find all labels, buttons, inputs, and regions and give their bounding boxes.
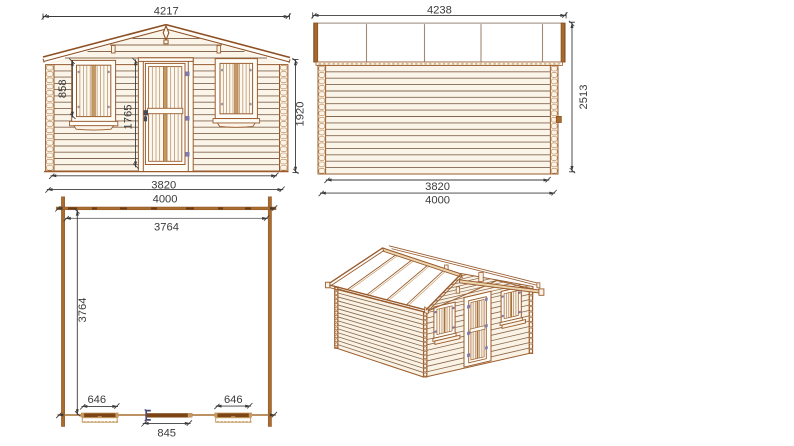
svg-text:646: 646: [87, 394, 106, 406]
svg-text:858: 858: [57, 79, 69, 98]
svg-text:1765: 1765: [122, 105, 134, 130]
svg-text:4217: 4217: [154, 6, 179, 18]
svg-text:3820: 3820: [425, 181, 450, 193]
svg-text:4000: 4000: [153, 194, 178, 206]
svg-text:3764: 3764: [77, 298, 89, 323]
svg-text:646: 646: [224, 394, 243, 406]
svg-text:4000: 4000: [425, 194, 450, 206]
svg-text:1920: 1920: [294, 102, 306, 127]
svg-text:2513: 2513: [578, 85, 590, 110]
svg-text:4238: 4238: [427, 5, 452, 17]
svg-text:845: 845: [157, 428, 176, 440]
svg-text:3764: 3764: [154, 222, 179, 234]
